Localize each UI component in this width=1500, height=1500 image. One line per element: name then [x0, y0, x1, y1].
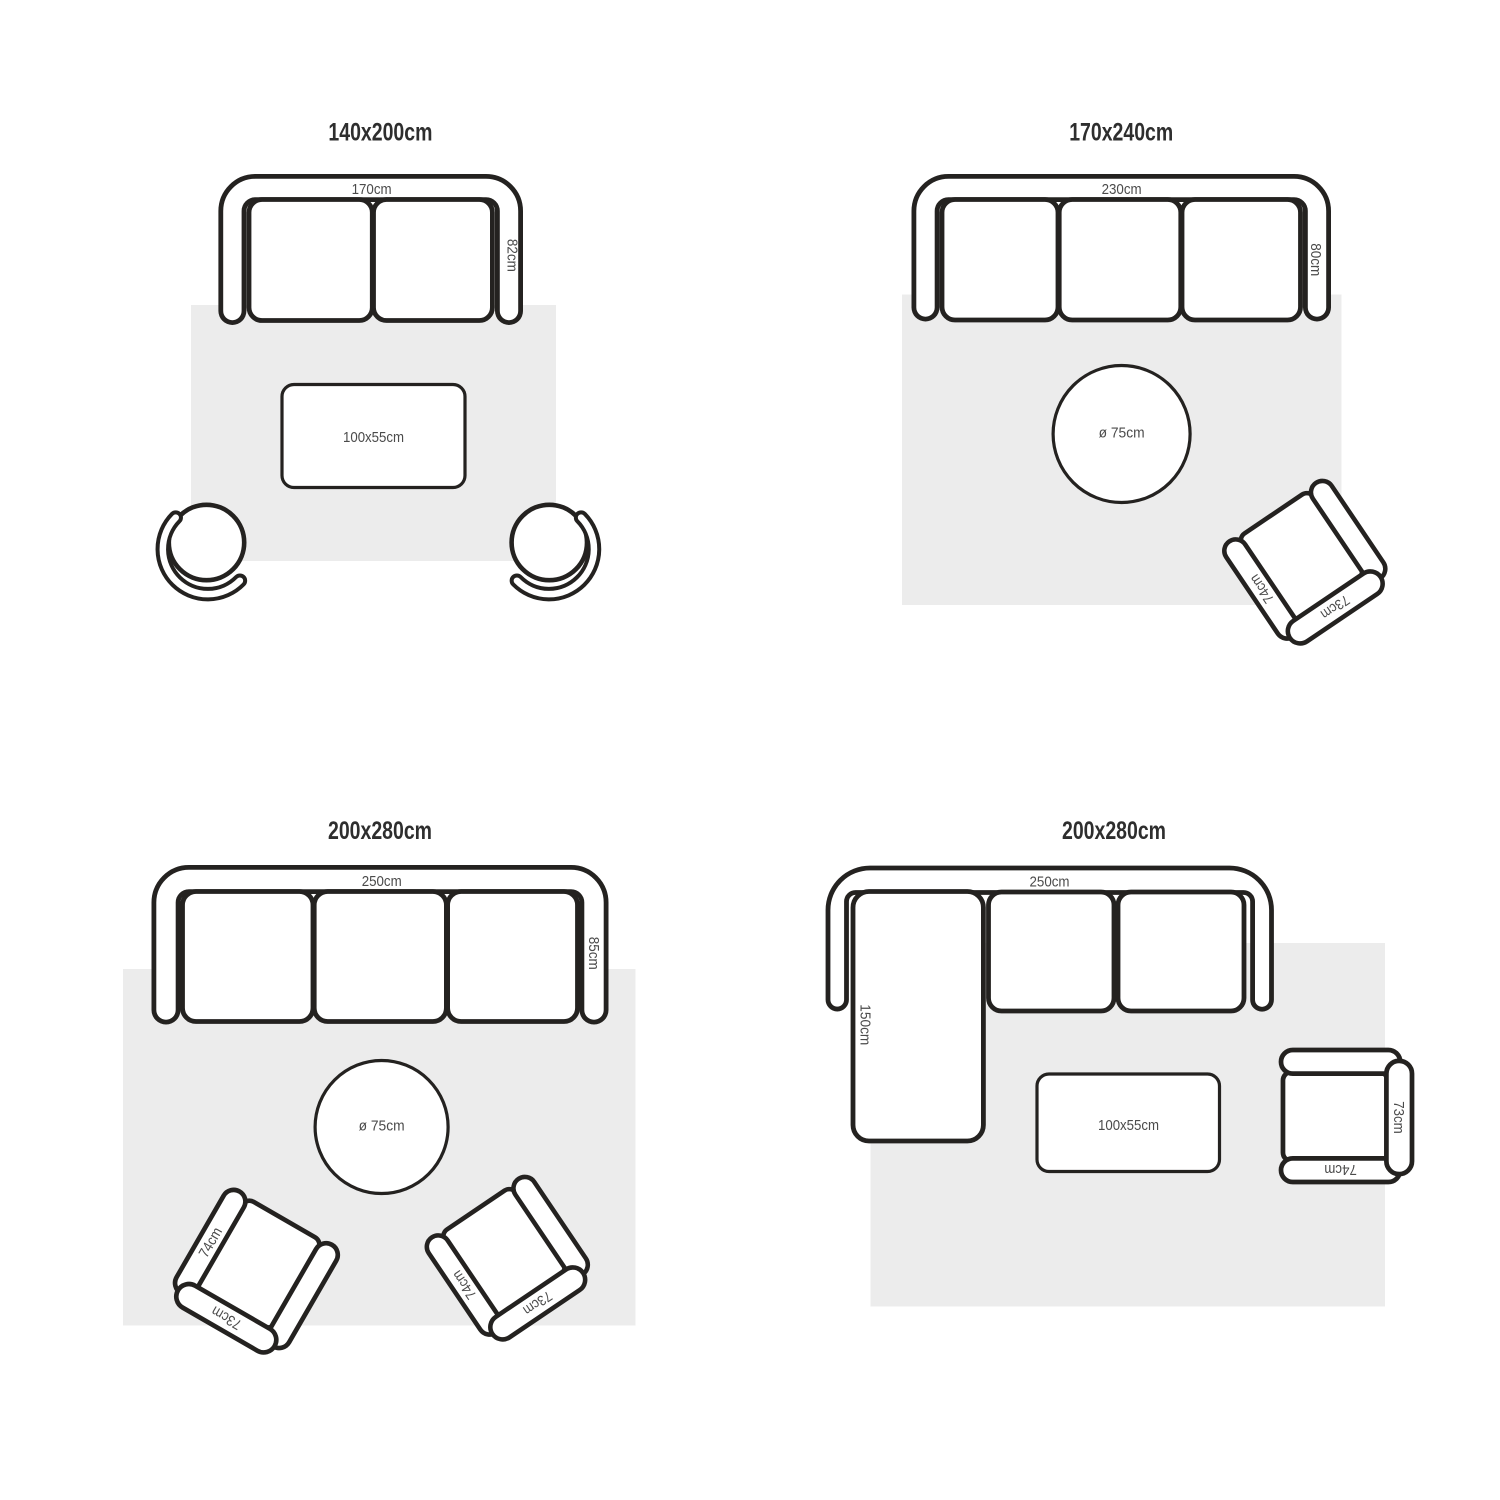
- svg-text:200x280cm: 200x280cm: [328, 817, 432, 845]
- svg-text:250cm: 250cm: [1030, 874, 1070, 891]
- svg-text:250cm: 250cm: [362, 873, 402, 890]
- svg-text:100x55cm: 100x55cm: [1098, 1117, 1159, 1134]
- svg-text:170x240cm: 170x240cm: [1069, 118, 1173, 146]
- svg-text:100x55cm: 100x55cm: [343, 429, 404, 446]
- svg-text:74cm: 74cm: [1324, 1161, 1357, 1177]
- svg-text:ø 75cm: ø 75cm: [359, 1118, 405, 1135]
- svg-text:170cm: 170cm: [352, 181, 392, 198]
- svg-text:150cm: 150cm: [856, 1004, 873, 1045]
- svg-text:85cm: 85cm: [585, 937, 602, 970]
- svg-text:ø 75cm: ø 75cm: [1099, 425, 1145, 442]
- svg-text:80cm: 80cm: [1307, 243, 1324, 276]
- svg-text:200x280cm: 200x280cm: [1062, 817, 1166, 845]
- svg-text:140x200cm: 140x200cm: [328, 118, 432, 146]
- svg-text:230cm: 230cm: [1102, 181, 1142, 198]
- svg-text:73cm: 73cm: [1390, 1101, 1406, 1134]
- svg-text:82cm: 82cm: [503, 239, 520, 272]
